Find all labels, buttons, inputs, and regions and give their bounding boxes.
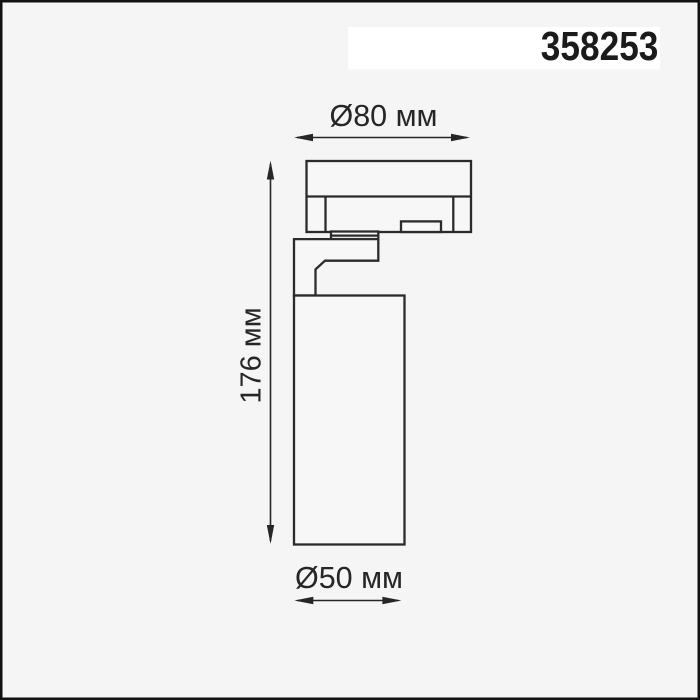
- svg-text:358253: 358253: [541, 23, 659, 69]
- svg-text:Ø50 мм: Ø50 мм: [295, 561, 403, 595]
- svg-text:Ø80 мм: Ø80 мм: [329, 99, 437, 133]
- svg-text:176 мм: 176 мм: [236, 307, 268, 403]
